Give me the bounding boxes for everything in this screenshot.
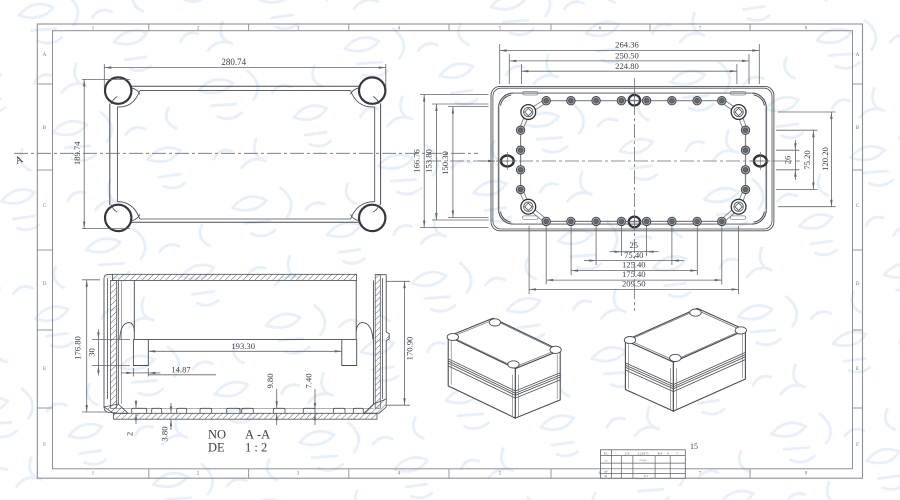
- svg-text:A: A: [43, 52, 47, 58]
- svg-text:3: 3: [297, 26, 300, 32]
- svg-text:4: 4: [398, 471, 401, 477]
- svg-text:6: 6: [599, 26, 602, 32]
- svg-text:DE: DE: [208, 441, 225, 455]
- svg-text:176.80: 176.80: [72, 336, 82, 360]
- svg-text:26: 26: [783, 155, 793, 164]
- svg-text:P.L: P.L: [604, 451, 608, 455]
- svg-text:193.30: 193.30: [231, 341, 255, 351]
- svg-text:D: D: [43, 281, 47, 287]
- svg-text:1 : 2: 1 : 2: [245, 441, 267, 455]
- svg-text:F: F: [43, 442, 46, 448]
- svg-text:2: 2: [125, 432, 135, 436]
- svg-text:14.87: 14.87: [171, 365, 191, 375]
- svg-text:D: D: [856, 281, 860, 287]
- svg-text:2: 2: [197, 471, 200, 477]
- svg-text:A: A: [856, 52, 860, 58]
- svg-text:3: 3: [297, 471, 300, 477]
- svg-text:280.74: 280.74: [221, 57, 246, 67]
- svg-text:224.80: 224.80: [615, 61, 639, 71]
- svg-text:u9: u9: [604, 470, 608, 474]
- svg-text:7: 7: [699, 471, 702, 477]
- svg-text:2: 2: [197, 26, 200, 32]
- svg-text:F: F: [856, 442, 859, 448]
- svg-text:125.40: 125.40: [622, 260, 646, 270]
- svg-text:-A: -A: [257, 428, 270, 442]
- svg-text:15: 15: [690, 442, 698, 451]
- svg-text:C: C: [43, 203, 47, 209]
- svg-text:4: 4: [398, 26, 401, 32]
- svg-text:**-0*: **-0*: [639, 459, 647, 463]
- svg-text:3.23A75: 3.23A75: [637, 451, 648, 455]
- svg-text:8 1: 8 1: [644, 474, 648, 478]
- svg-text:A: A: [245, 428, 254, 442]
- svg-text:30: 30: [87, 348, 97, 357]
- svg-text:5: 5: [499, 26, 502, 32]
- svg-text:9.80: 9.80: [265, 373, 275, 388]
- svg-text:C: C: [856, 203, 860, 209]
- svg-text:1: 1: [92, 471, 95, 477]
- svg-text:3.80: 3.80: [160, 426, 170, 441]
- svg-text:5: 5: [499, 471, 502, 477]
- svg-text:250.50: 250.50: [615, 50, 639, 60]
- svg-text:8: 8: [805, 26, 808, 32]
- svg-text:7: 7: [699, 26, 702, 32]
- svg-text:4y: 4y: [604, 474, 608, 478]
- svg-text:166.76: 166.76: [411, 148, 421, 172]
- svg-text:150.30: 150.30: [440, 151, 450, 175]
- svg-text:209.50: 209.50: [622, 279, 646, 289]
- svg-text:B.P: B.P: [658, 451, 663, 455]
- svg-text:8: 8: [805, 471, 808, 477]
- svg-text:-.: -.: [615, 451, 617, 455]
- svg-text:189.74: 189.74: [72, 141, 82, 165]
- svg-text:153.80: 153.80: [424, 149, 434, 173]
- svg-text:7.40: 7.40: [304, 373, 314, 388]
- svg-text:NO: NO: [208, 428, 226, 442]
- svg-text:170.90: 170.90: [404, 337, 414, 361]
- svg-text:1: 1: [92, 26, 95, 32]
- svg-text:B: B: [856, 125, 860, 131]
- svg-text:120.20: 120.20: [820, 147, 830, 171]
- svg-text:25: 25: [630, 240, 639, 250]
- svg-text:75.20: 75.20: [802, 150, 812, 169]
- svg-text:Z 8: Z 8: [625, 451, 630, 455]
- svg-text:B: B: [43, 125, 47, 131]
- svg-text:264.36: 264.36: [615, 40, 639, 50]
